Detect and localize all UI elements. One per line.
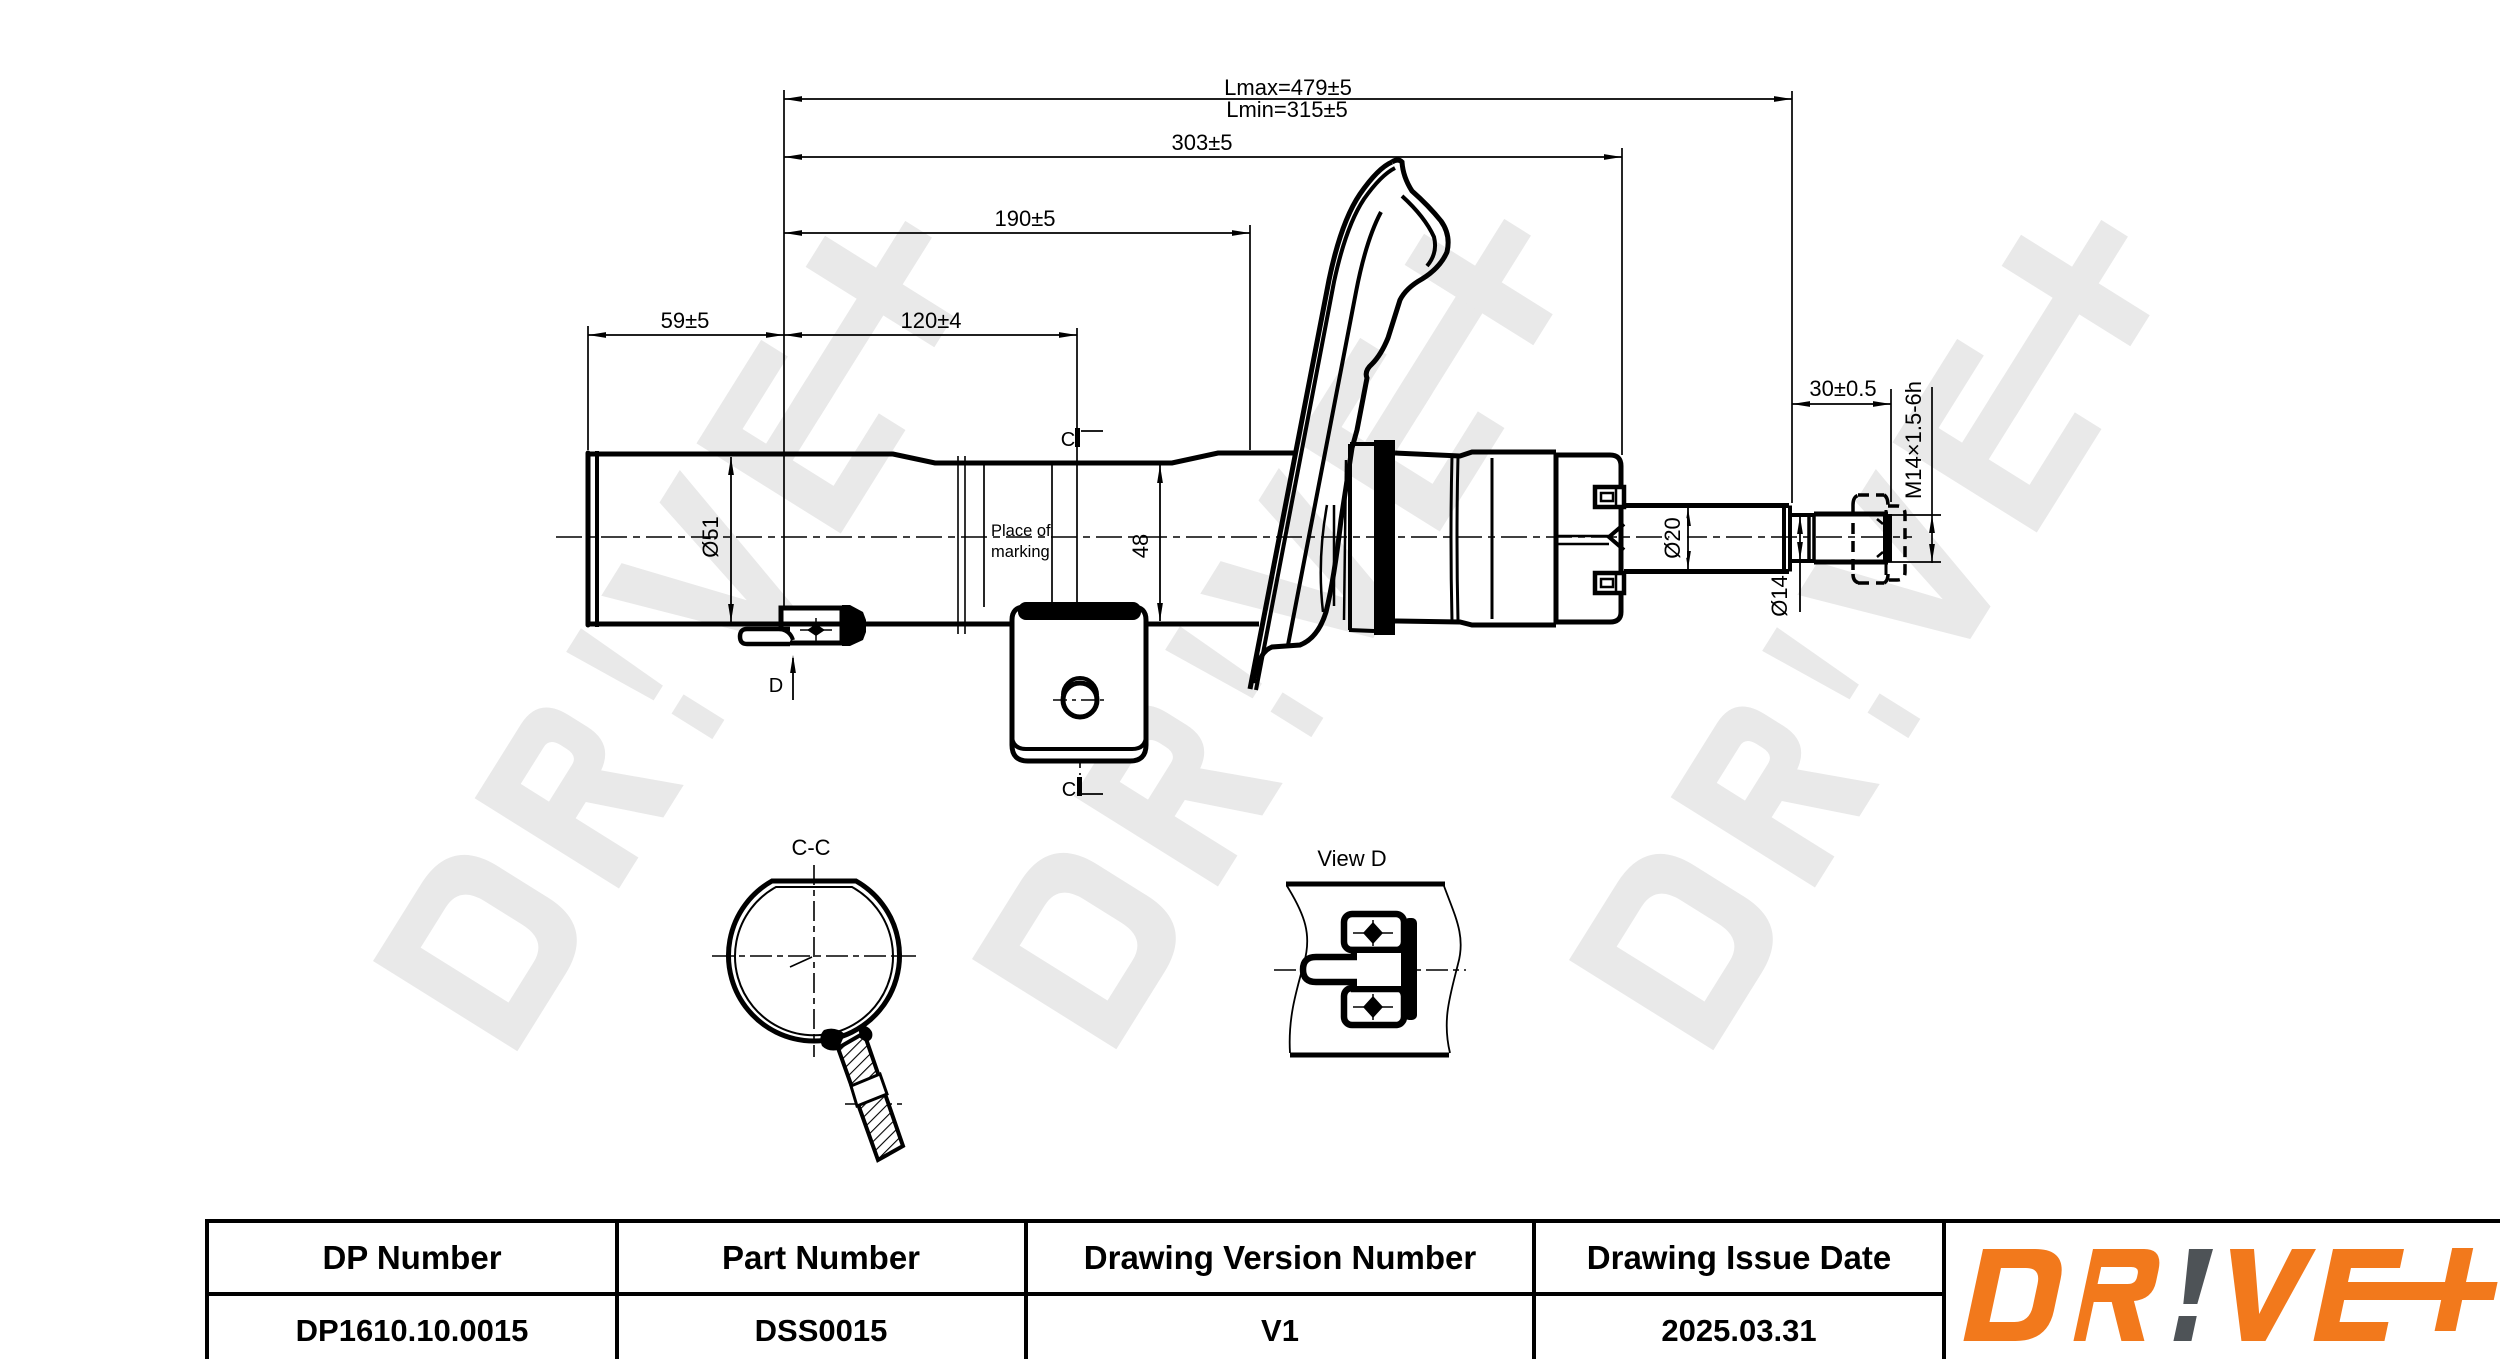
svg-text:Place of: Place of	[991, 522, 1051, 540]
svg-text:C: C	[1062, 779, 1076, 801]
svg-text:View D: View D	[1317, 846, 1386, 871]
svg-text:V1: V1	[1261, 1313, 1299, 1348]
svg-text:C-C: C-C	[791, 835, 830, 860]
svg-text:Drawing Issue Date: Drawing Issue Date	[1587, 1239, 1891, 1276]
svg-text:59±5: 59±5	[661, 308, 710, 333]
svg-text:Lmin=315±5: Lmin=315±5	[1226, 97, 1348, 122]
svg-text:Drawing Version Number: Drawing Version Number	[1084, 1239, 1477, 1276]
svg-text:Ø51: Ø51	[698, 516, 723, 558]
svg-text:120±4: 120±4	[900, 308, 961, 333]
svg-text:30±0.5: 30±0.5	[1809, 376, 1876, 401]
svg-text:D: D	[769, 675, 783, 697]
svg-text:2025.03.31: 2025.03.31	[1661, 1313, 1816, 1348]
svg-text:Ø20: Ø20	[1660, 517, 1685, 559]
svg-text:marking: marking	[991, 543, 1050, 561]
svg-text:DP1610.10.0015: DP1610.10.0015	[296, 1313, 529, 1348]
svg-text:M14×1.5-6h: M14×1.5-6h	[1901, 381, 1926, 499]
svg-text:Ø14: Ø14	[1767, 575, 1792, 617]
svg-text:Part Number: Part Number	[722, 1239, 920, 1276]
svg-text:190±5: 190±5	[994, 206, 1055, 231]
svg-text:DP Number: DP Number	[322, 1239, 501, 1276]
svg-text:303±5: 303±5	[1171, 130, 1232, 155]
svg-text:C: C	[1061, 429, 1075, 451]
svg-text:DSS0015: DSS0015	[755, 1313, 888, 1348]
svg-text:48: 48	[1128, 534, 1153, 558]
